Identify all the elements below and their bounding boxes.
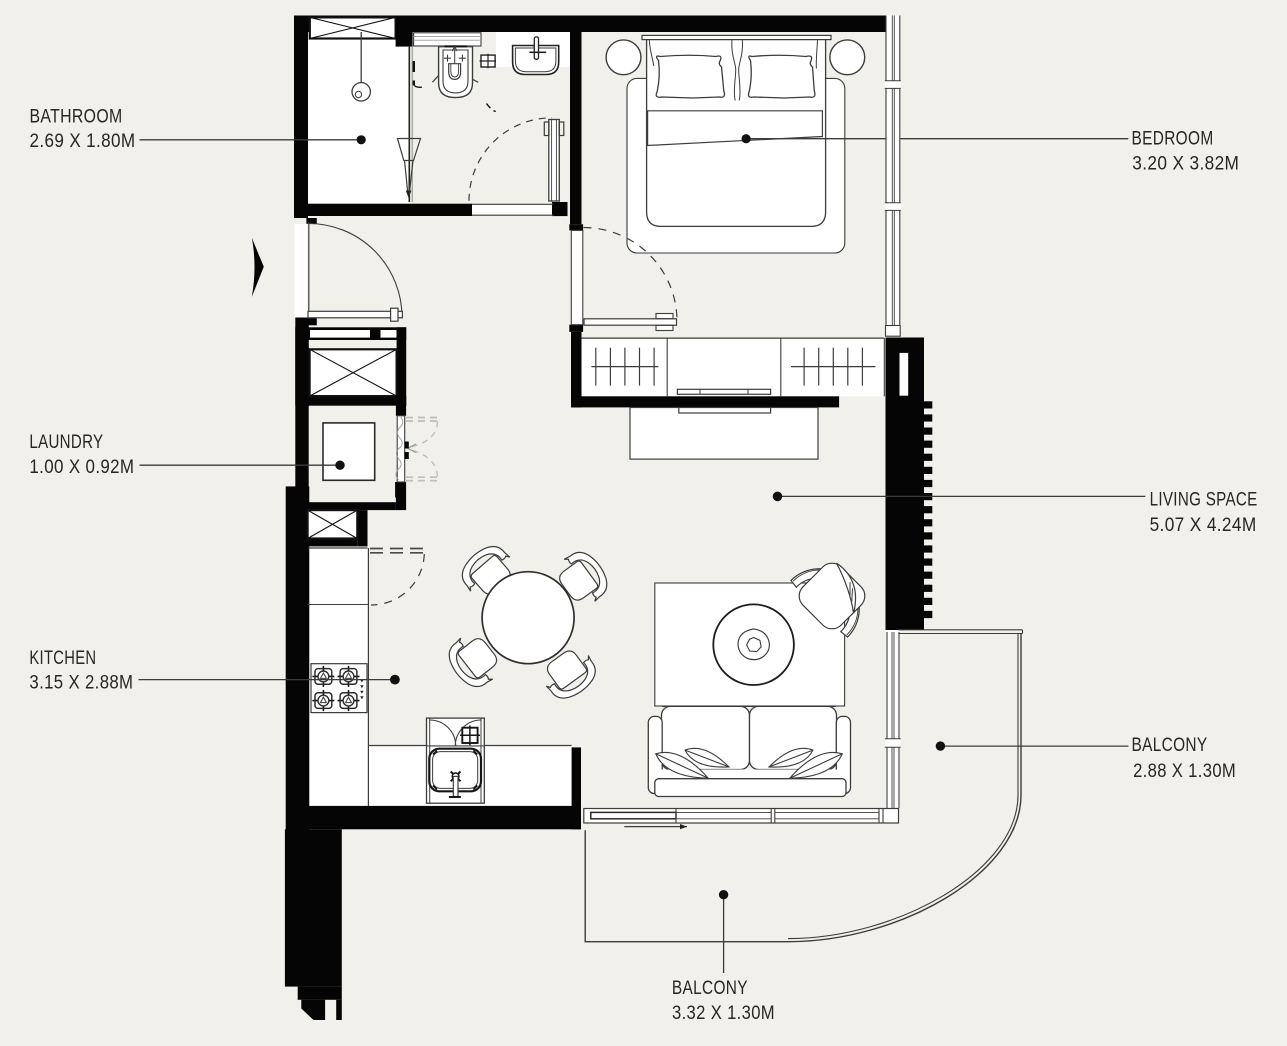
svg-text:3.20 X 3.82M: 3.20 X 3.82M [1132, 153, 1239, 174]
svg-text:3.15 X 2.88M: 3.15 X 2.88M [29, 673, 133, 694]
svg-text:3.32 X 1.30M: 3.32 X 1.30M [672, 1003, 775, 1024]
svg-text:KITCHEN: KITCHEN [29, 648, 96, 669]
svg-text:2.88 X 1.30M: 2.88 X 1.30M [1133, 761, 1236, 782]
svg-text:LAUNDRY: LAUNDRY [29, 432, 103, 453]
svg-text:BALCONY: BALCONY [1132, 735, 1208, 756]
svg-text:2.69 X 1.80M: 2.69 X 1.80M [30, 131, 136, 152]
svg-text:BEDROOM: BEDROOM [1132, 129, 1214, 150]
svg-text:5.07 X 4.24M: 5.07 X 4.24M [1150, 515, 1257, 536]
svg-text:LIVING SPACE: LIVING SPACE [1150, 490, 1258, 511]
svg-text:1.00 X 0.92M: 1.00 X 0.92M [29, 457, 134, 478]
svg-text:BALCONY: BALCONY [672, 978, 748, 999]
svg-text:BATHROOM: BATHROOM [30, 107, 123, 128]
